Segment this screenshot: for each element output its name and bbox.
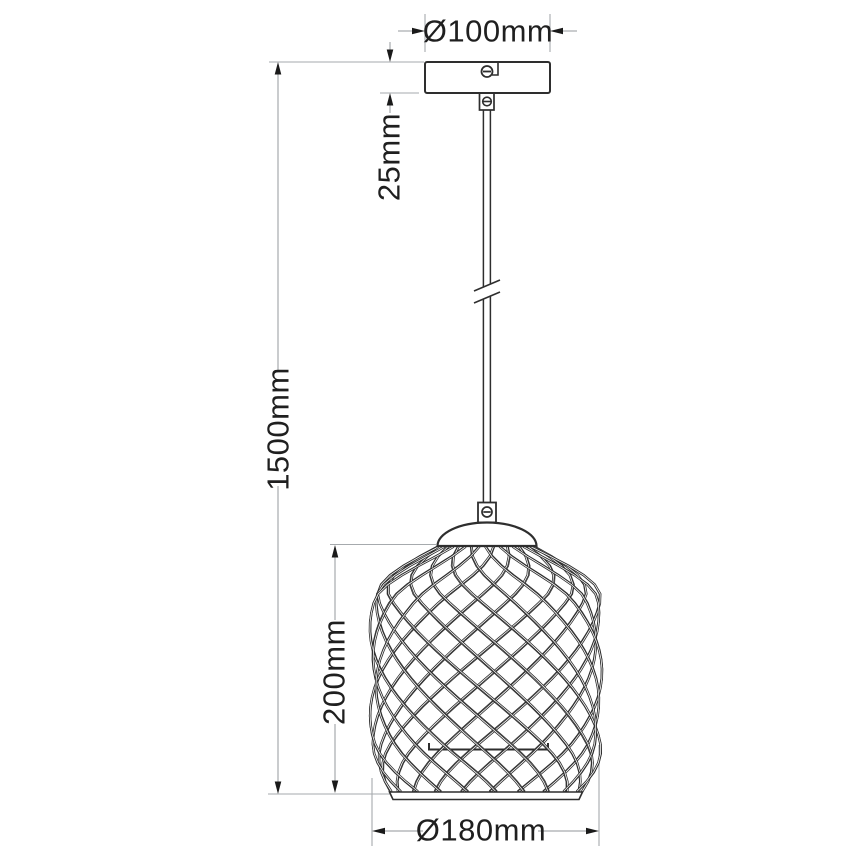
arrow-down-icon	[332, 781, 339, 794]
arrow-right-icon	[586, 828, 599, 834]
shade-diameter-label: Ø180mm	[416, 815, 546, 846]
arrow-down-icon	[387, 50, 394, 63]
shade-dome-cap	[438, 522, 537, 546]
arrow-up-icon	[332, 545, 339, 558]
shade-height-label: 200mm	[319, 619, 350, 725]
arrow-up-icon	[275, 62, 282, 75]
total-height-label: 1500mm	[263, 367, 294, 491]
dimension-drawing: Ø100mm 25mm 1500mm 200mm Ø180mm	[0, 0, 868, 868]
canopy-diameter-label: Ø100mm	[423, 16, 553, 47]
canopy-height-label: 25mm	[374, 113, 405, 201]
cable-break-gap	[475, 281, 500, 302]
cage-wire	[389, 547, 568, 791]
arrow-down-icon	[275, 782, 282, 795]
arrow-left-icon	[372, 828, 385, 834]
cage-wire	[389, 547, 568, 791]
cage-wire	[388, 547, 567, 791]
arrow-up-icon	[387, 93, 394, 106]
wire-cage-shade	[370, 547, 602, 791]
drawing-linework	[0, 0, 868, 868]
cage-wire	[388, 547, 567, 791]
bottom-rim	[390, 792, 583, 800]
